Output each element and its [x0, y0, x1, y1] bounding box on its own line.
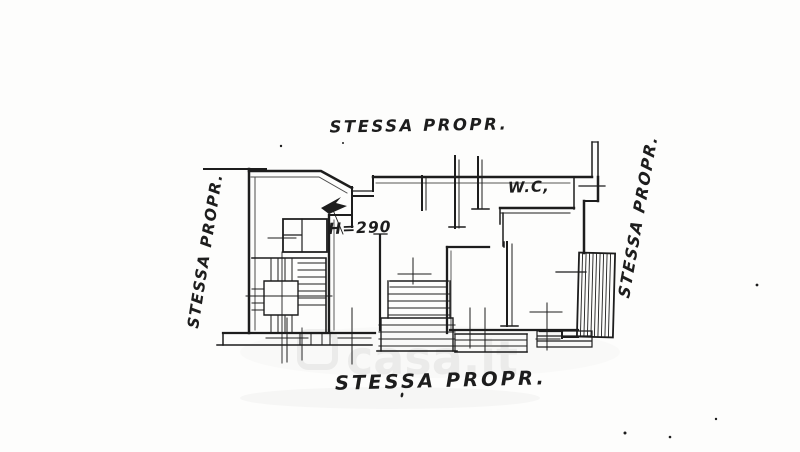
floor-plan-drawing: casa.it	[0, 0, 800, 452]
room-label-wc: W.C,	[508, 177, 550, 196]
label-right: STESSA PROPR.	[615, 132, 662, 300]
label-left: STESSA PROPR.	[184, 172, 226, 330]
balcony-hatched	[577, 253, 615, 338]
floor-plan-scan: casa.it	[0, 0, 800, 452]
label-bottom: STESSA PROPR.	[335, 366, 547, 395]
annotation-ceiling-height: H=290	[328, 218, 392, 238]
label-top: STESSA PROPR.	[329, 114, 508, 136]
